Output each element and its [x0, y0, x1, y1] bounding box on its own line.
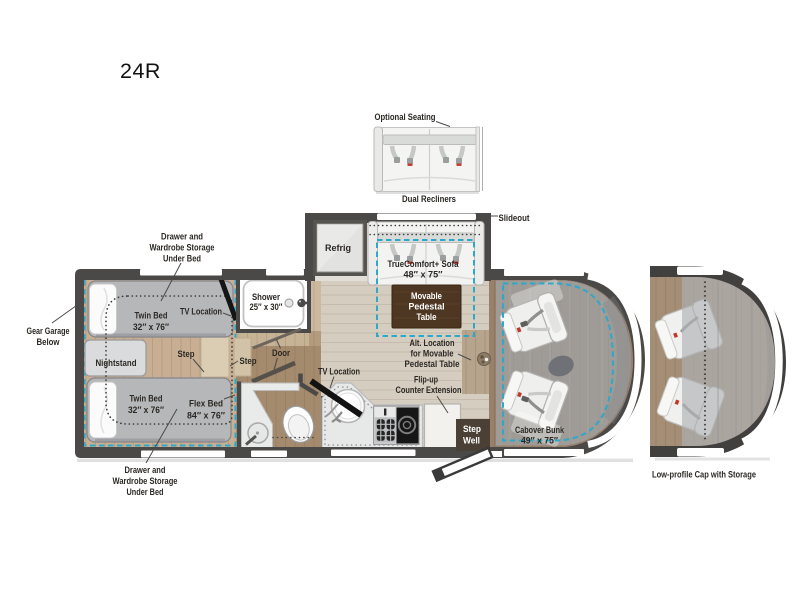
svg-text:Under Bed: Under Bed [163, 254, 201, 265]
svg-text:25″ x 30″: 25″ x 30″ [250, 302, 283, 313]
svg-text:Below: Below [37, 337, 60, 348]
svg-text:TV Location: TV Location [180, 307, 222, 318]
svg-text:Drawer and: Drawer and [161, 232, 203, 243]
svg-text:48″ x 75″: 48″ x 75″ [404, 270, 443, 281]
svg-text:Dual Recliners: Dual Recliners [402, 194, 456, 205]
svg-text:Table: Table [417, 312, 437, 323]
svg-text:Nightstand: Nightstand [96, 358, 137, 369]
svg-text:Under Bed: Under Bed [127, 487, 164, 498]
svg-text:32″ x 76″: 32″ x 76″ [128, 405, 164, 416]
svg-text:Twin Bed: Twin Bed [130, 394, 163, 405]
svg-text:Refrig: Refrig [325, 243, 351, 254]
svg-text:Flip-up: Flip-up [414, 375, 438, 386]
svg-text:Optional Seating: Optional Seating [375, 112, 436, 123]
svg-text:Twin Bed: Twin Bed [135, 311, 168, 322]
svg-text:TV Location: TV Location [318, 367, 360, 378]
svg-text:84″ x 76″: 84″ x 76″ [187, 411, 225, 422]
svg-text:Wardrobe Storage: Wardrobe Storage [150, 243, 215, 254]
svg-text:Flex Bed: Flex Bed [189, 399, 223, 410]
svg-text:Slideout: Slideout [499, 213, 531, 224]
svg-text:Step: Step [178, 349, 195, 360]
svg-text:Cabover Bunk: Cabover Bunk [515, 425, 565, 436]
svg-text:Gear Garage: Gear Garage [27, 326, 70, 337]
svg-text:Pedestal Table: Pedestal Table [405, 359, 460, 370]
svg-text:Alt. Location: Alt. Location [410, 338, 455, 349]
svg-text:Wardrobe Storage: Wardrobe Storage [113, 476, 178, 487]
svg-text:Step: Step [240, 356, 257, 367]
svg-text:TrueComfort+ Sofa: TrueComfort+ Sofa [388, 259, 460, 270]
svg-text:Step: Step [463, 424, 481, 435]
svg-text:for Movable: for Movable [411, 349, 454, 360]
svg-text:Movable: Movable [411, 291, 442, 302]
svg-text:24R: 24R [120, 59, 161, 83]
svg-text:Well: Well [463, 436, 480, 447]
svg-text:Door: Door [272, 348, 290, 359]
svg-text:Pedestal: Pedestal [409, 302, 445, 313]
svg-text:Low-profile Cap with Storage: Low-profile Cap with Storage [652, 470, 756, 481]
svg-text:49″ x 75″: 49″ x 75″ [521, 436, 558, 447]
svg-text:Drawer and: Drawer and [125, 465, 166, 476]
svg-text:32″ x 76″: 32″ x 76″ [133, 322, 169, 333]
svg-text:Counter Extension: Counter Extension [396, 385, 462, 396]
